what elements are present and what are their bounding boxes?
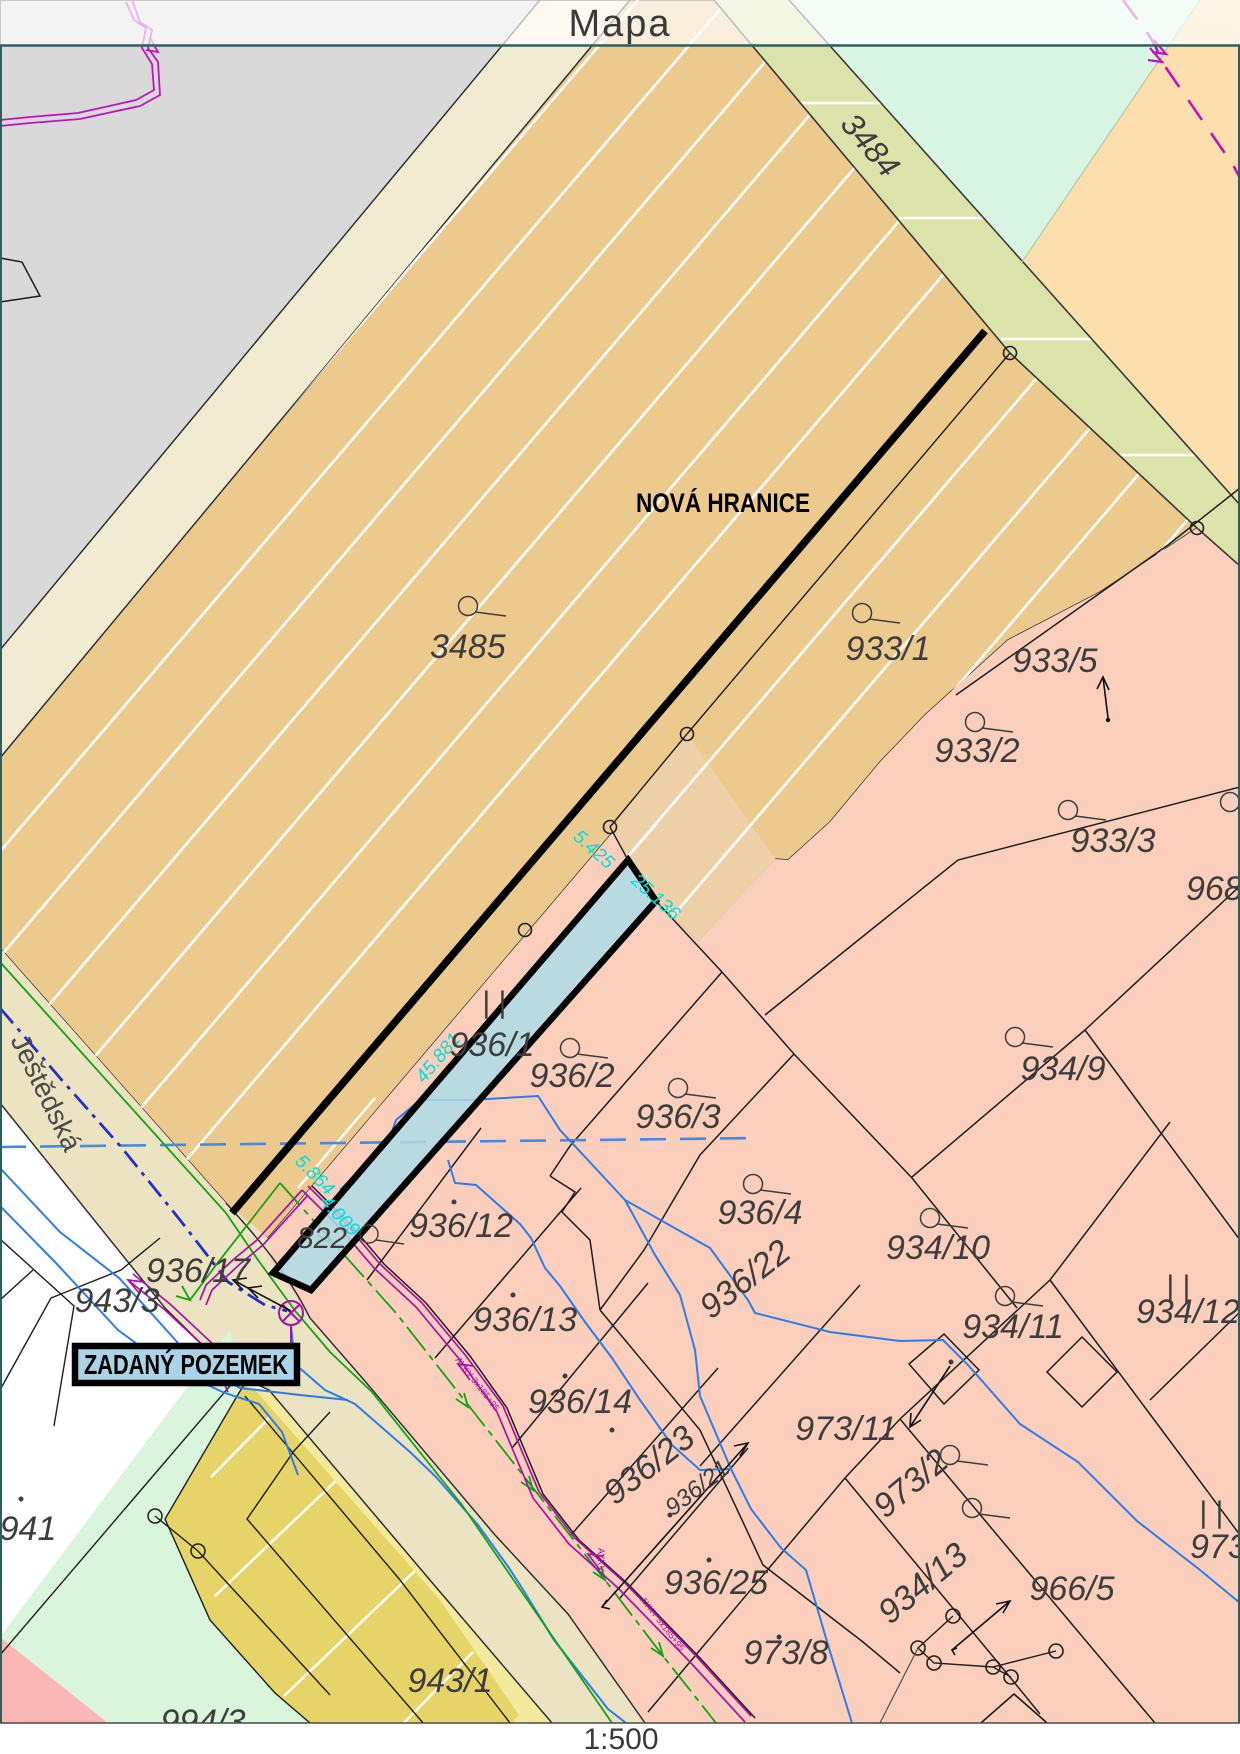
svg-text:973/8: 973/8: [743, 1634, 828, 1672]
svg-text:AYKY: AYKY: [596, 1548, 606, 1571]
svg-text:943/1: 943/1: [407, 1662, 492, 1700]
svg-text:822: 822: [297, 1222, 347, 1255]
svg-text:936/3: 936/3: [635, 1098, 720, 1136]
svg-text:3485: 3485: [430, 628, 506, 666]
svg-text:936/12: 936/12: [409, 1207, 513, 1245]
svg-text:934/9: 934/9: [1020, 1050, 1105, 1088]
svg-text:1:500: 1:500: [583, 1723, 658, 1754]
svg-text:941: 941: [0, 1510, 56, 1548]
svg-text:NOVÁ HRANICE: NOVÁ HRANICE: [636, 487, 810, 518]
svg-text:933/2: 933/2: [934, 732, 1019, 770]
svg-text:936/25: 936/25: [664, 1564, 768, 1602]
svg-text:936/1: 936/1: [449, 1026, 534, 1064]
svg-text:936/13: 936/13: [473, 1301, 577, 1339]
svg-text:933/1: 933/1: [845, 630, 930, 668]
svg-text:934/11: 934/11: [962, 1308, 1063, 1346]
svg-text:973/11: 973/11: [795, 1410, 896, 1448]
svg-text:933/3: 933/3: [1070, 822, 1155, 860]
svg-text:936/2: 936/2: [529, 1057, 614, 1095]
svg-text:934/10: 934/10: [886, 1229, 990, 1267]
svg-text:966/5: 966/5: [1029, 1570, 1114, 1608]
svg-text:ZADANÝ POZEMEK: ZADANÝ POZEMEK: [84, 1349, 288, 1380]
svg-text:936/14: 936/14: [528, 1383, 632, 1421]
svg-text:Mapa: Mapa: [568, 3, 671, 45]
svg-text:936/4: 936/4: [717, 1194, 802, 1232]
svg-text:| |: | |: [1199, 1496, 1223, 1529]
svg-text:968/: 968/: [1186, 870, 1240, 908]
svg-text:933/5: 933/5: [1012, 642, 1097, 680]
svg-text:973/: 973/: [1190, 1528, 1240, 1566]
svg-text:934/12: 934/12: [1136, 1293, 1240, 1331]
svg-text:| |: | |: [482, 986, 506, 1019]
svg-text:936/17: 936/17: [146, 1252, 251, 1290]
